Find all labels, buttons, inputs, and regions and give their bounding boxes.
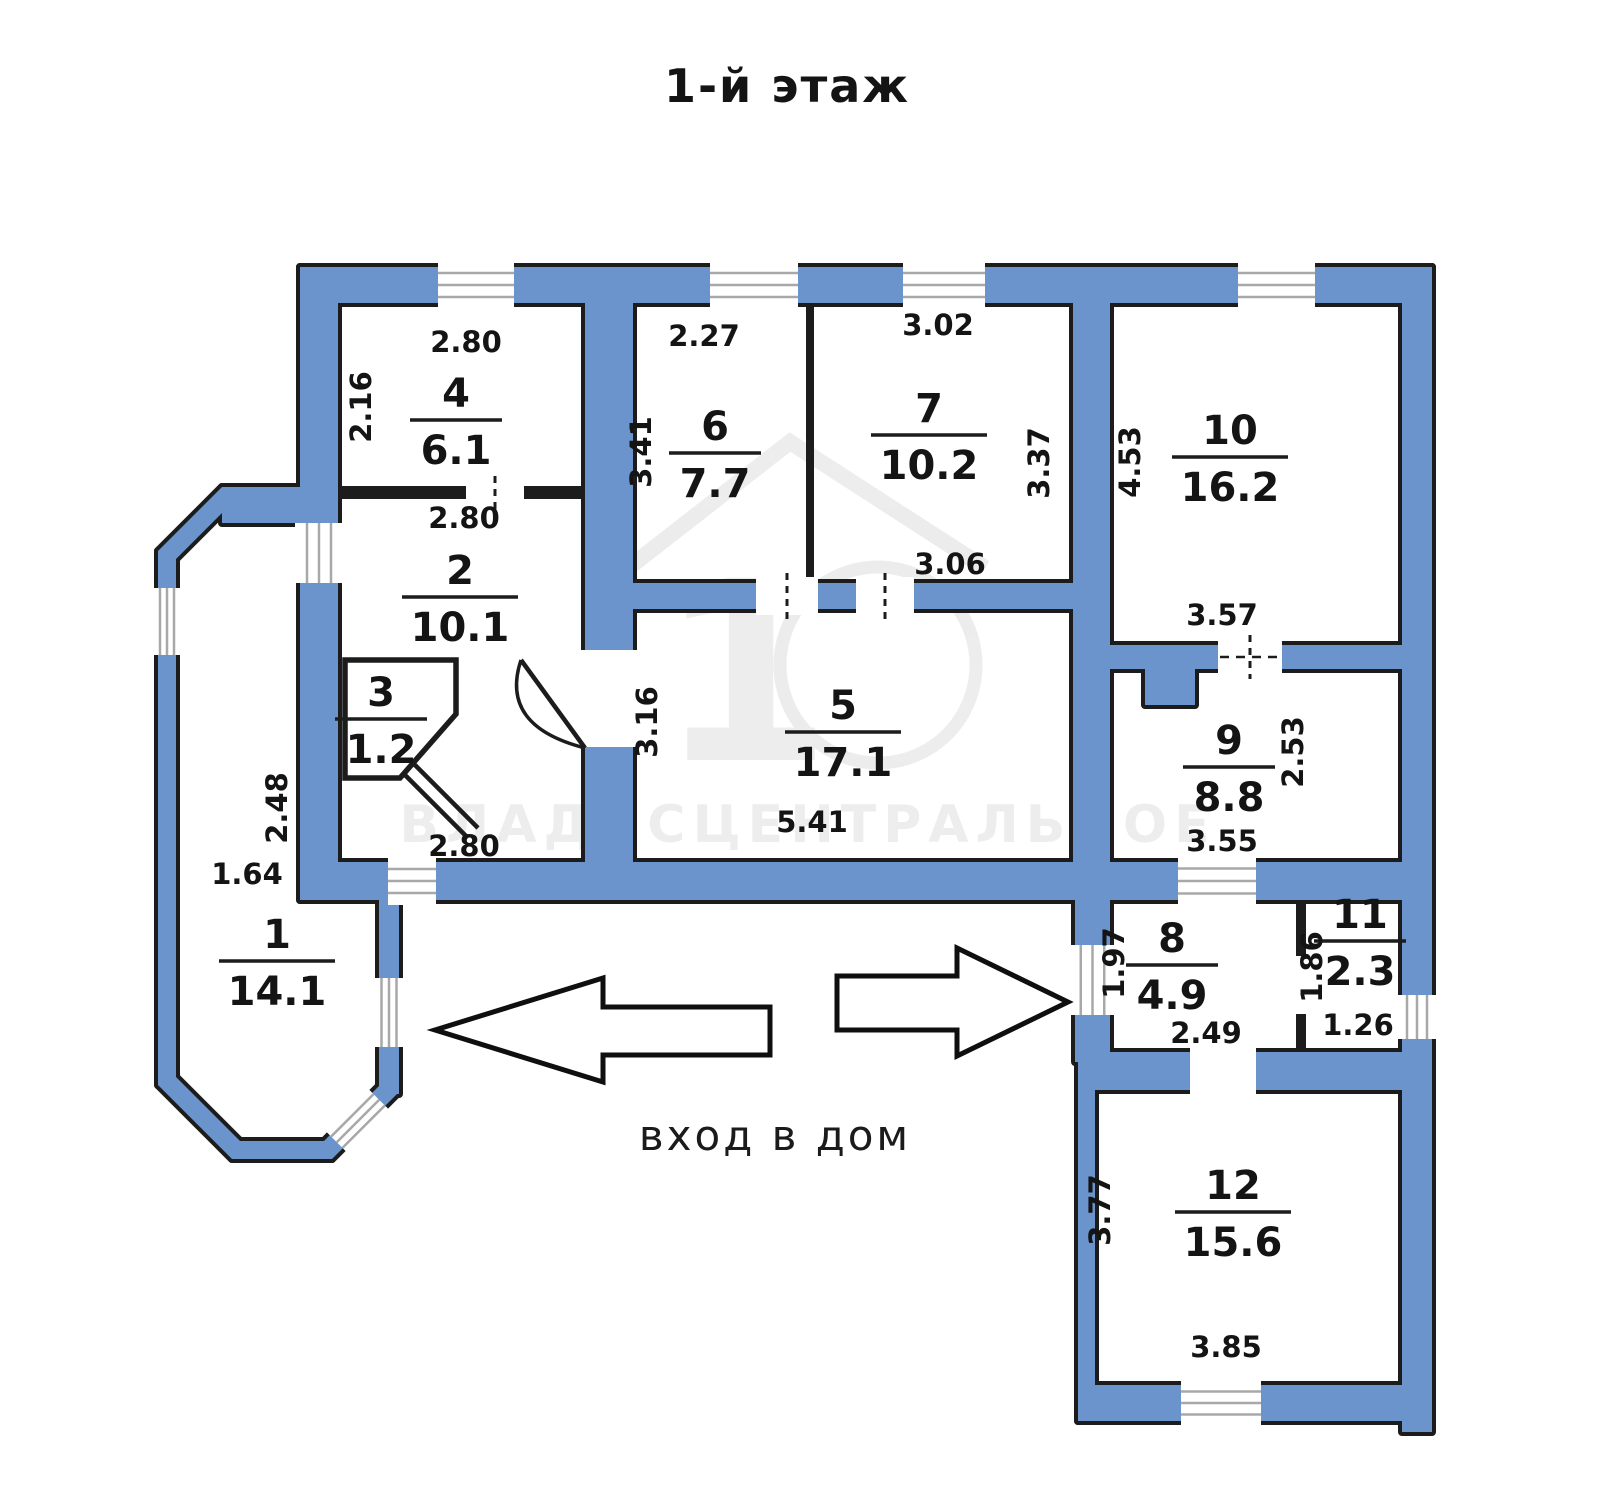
- dimension-label: 3.85: [1190, 1330, 1262, 1364]
- dimension-label: 1.86: [1295, 931, 1329, 1003]
- dimension-label: 4.53: [1113, 426, 1147, 498]
- wall-segment: [1145, 669, 1195, 705]
- room-number: 2: [446, 548, 474, 594]
- dimension-label: 2.53: [1276, 716, 1310, 788]
- room-label-4: 46.1: [410, 371, 502, 474]
- dimension-label: 5.41: [776, 805, 848, 839]
- room-2-door: [517, 660, 585, 748]
- room-label-1: 114.1: [219, 912, 335, 1015]
- wall-segment: [585, 303, 633, 862]
- room-number: 7: [915, 386, 943, 432]
- dimension-label: 3.16: [630, 686, 664, 758]
- room-label-6: 67.7: [669, 404, 761, 507]
- entrance-label: вход в дом: [639, 1111, 911, 1160]
- dimension-label: 2.80: [430, 325, 502, 359]
- wall-segment: [1402, 267, 1432, 1432]
- room-area: 1.2: [346, 727, 417, 773]
- room-number: 10: [1202, 408, 1258, 454]
- room-area: 15.6: [1184, 1220, 1283, 1266]
- room-number: 6: [701, 404, 729, 450]
- room-number: 8: [1158, 916, 1186, 962]
- room-number: 1: [263, 912, 291, 958]
- dimension-label: 2.49: [1170, 1016, 1242, 1050]
- page-title: 1-й этаж: [664, 59, 910, 113]
- wall-segment: [1073, 303, 1110, 862]
- dimension-label: 2.48: [260, 772, 294, 844]
- dimension-label: 3.41: [624, 416, 658, 488]
- room-area: 10.2: [880, 443, 979, 489]
- room-number: 11: [1332, 892, 1388, 938]
- room-number: 3: [367, 670, 395, 716]
- dimension-label: 3.77: [1083, 1174, 1117, 1246]
- room-number: 5: [829, 683, 857, 729]
- wall-segment: [222, 487, 306, 523]
- partition-wall: [338, 486, 585, 499]
- dimension-label: 1.26: [1322, 1008, 1394, 1042]
- dimension-label: 1.64: [211, 857, 283, 891]
- dimension-label: 2.16: [344, 371, 378, 443]
- room-label-8: 84.9: [1126, 916, 1218, 1019]
- room-label-9: 98.8: [1183, 718, 1275, 821]
- room-number: 9: [1215, 718, 1243, 764]
- room-area: 10.1: [411, 605, 510, 651]
- partition-wall: [806, 303, 814, 583]
- arrow-right-icon: [837, 948, 1068, 1056]
- floor-plan-drawing: 1 ВЛАДИСЦЕНТРАЛЬНОЕ 114.1210.131.246.151…: [0, 0, 1600, 1511]
- door-gap: [756, 577, 818, 615]
- wall-segment: [633, 583, 1073, 609]
- dimension-label: 2.80: [428, 501, 500, 535]
- room-area: 14.1: [228, 969, 327, 1015]
- room-label-12: 1215.6: [1175, 1163, 1291, 1266]
- wall-segment: [232, 1141, 332, 1159]
- room-area: 6.1: [421, 428, 492, 474]
- room-label-2: 210.1: [402, 548, 518, 651]
- room-number: 12: [1205, 1163, 1261, 1209]
- room-area: 17.1: [794, 740, 893, 786]
- room-label-10: 1016.2: [1172, 408, 1288, 511]
- room-area: 7.7: [680, 461, 751, 507]
- dimension-label: 3.55: [1186, 824, 1258, 858]
- dimension-label: 3.57: [1186, 598, 1258, 632]
- room-area: 4.9: [1137, 973, 1208, 1019]
- arrow-left-icon: [435, 978, 770, 1082]
- room-area: 2.3: [1325, 949, 1396, 995]
- door-gap: [1190, 1046, 1256, 1096]
- dimension-label: 2.80: [428, 829, 500, 863]
- dimension-label: 2.27: [668, 319, 740, 353]
- door-gap: [856, 577, 914, 615]
- room-label-7: 710.2: [871, 386, 987, 489]
- wall-segment: [300, 267, 338, 900]
- wall-segment: [158, 1072, 245, 1159]
- room-number: 4: [442, 371, 470, 417]
- dimension-label: 3.37: [1022, 427, 1056, 499]
- dimension-label: 1.97: [1097, 927, 1131, 999]
- dimension-label: 3.06: [914, 547, 986, 581]
- dimension-label: 3.02: [902, 308, 974, 342]
- floor-plan-page: 1 ВЛАДИСЦЕНТРАЛЬНОЕ 114.1210.131.246.151…: [0, 0, 1600, 1511]
- room-area: 8.8: [1194, 775, 1265, 821]
- room-area: 16.2: [1181, 465, 1280, 511]
